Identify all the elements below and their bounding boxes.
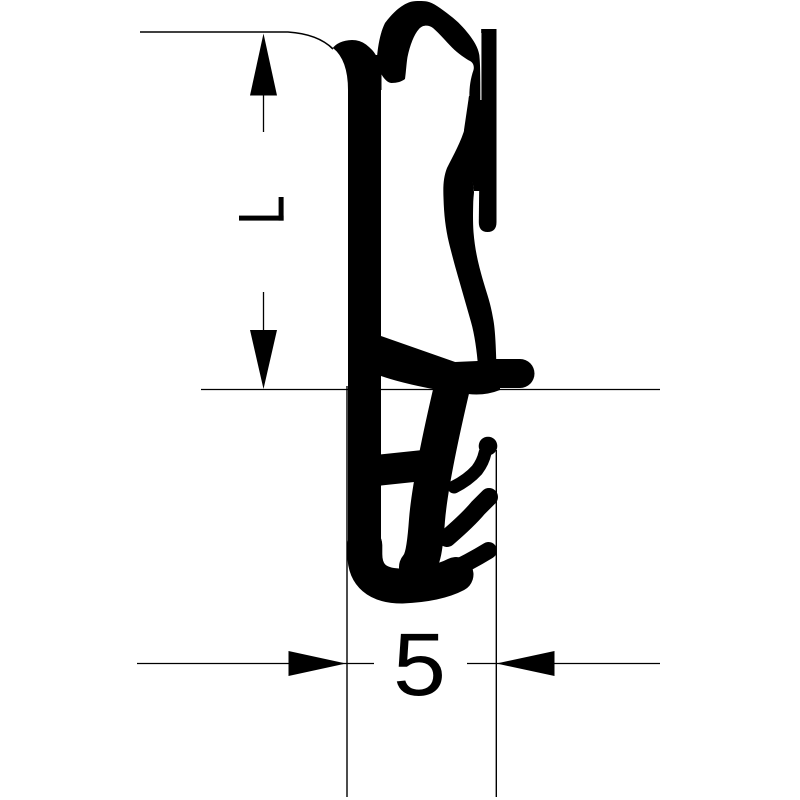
svg-text:5: 5 [393, 615, 446, 714]
